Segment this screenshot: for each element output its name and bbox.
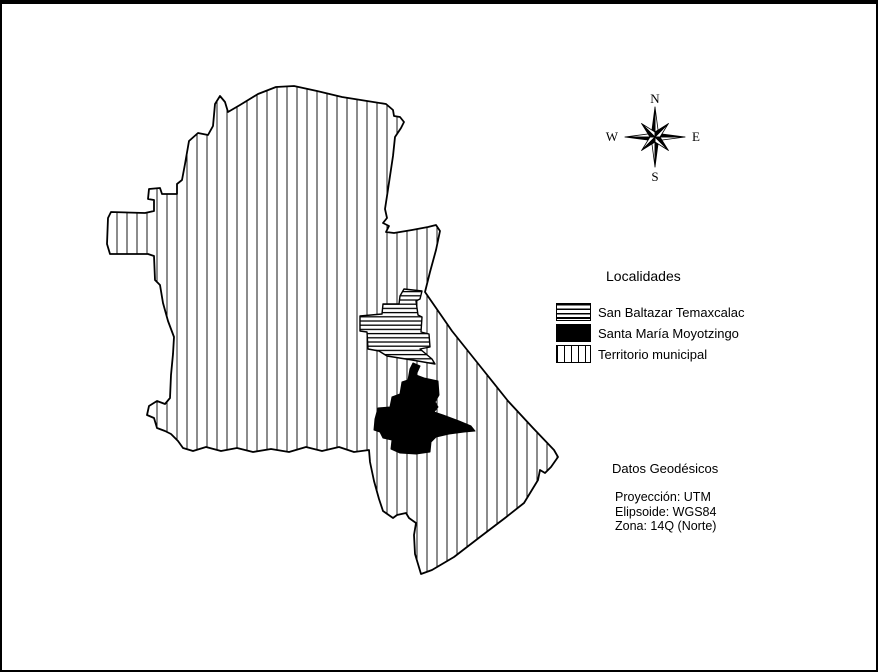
horizontal-stripes-swatch-icon	[556, 303, 591, 321]
compass-label-north: N	[650, 91, 660, 106]
legend-item-territorio: Territorio municipal	[556, 345, 707, 363]
geodesic-zone-line: Zona: 14Q (Norte)	[615, 519, 716, 534]
compass-label-south: S	[651, 169, 658, 184]
legend-item-san-baltazar: San Baltazar Temaxcalac	[556, 303, 744, 321]
legend-title: Localidades	[606, 268, 681, 284]
compass-rose-icon	[625, 107, 685, 167]
map-canvas: N E S W	[2, 4, 876, 670]
geodesic-ellipsoid-line: Elipsoide: WGS84	[615, 505, 716, 520]
geodesic-projection-line: Proyección: UTM	[615, 490, 716, 505]
vertical-stripes-swatch-icon	[556, 345, 591, 363]
legend-item-label: Santa María Moyotzingo	[598, 326, 739, 341]
compass-label-west: W	[606, 129, 619, 144]
compass-label-east: E	[692, 129, 700, 144]
solid-black-swatch-icon	[556, 324, 591, 342]
legend-item-santa-maria: Santa María Moyotzingo	[556, 324, 739, 342]
map-page: N E S W Localidades San Baltazar Temaxca…	[0, 0, 878, 672]
legend-item-label: San Baltazar Temaxcalac	[598, 305, 744, 320]
geodesic-data-block: Proyección: UTM Elipsoide: WGS84 Zona: 1…	[615, 490, 716, 534]
legend-item-label: Territorio municipal	[598, 347, 707, 362]
geodesic-data-title: Datos Geodésicos	[612, 461, 718, 476]
region-territorio-municipal	[107, 86, 558, 574]
